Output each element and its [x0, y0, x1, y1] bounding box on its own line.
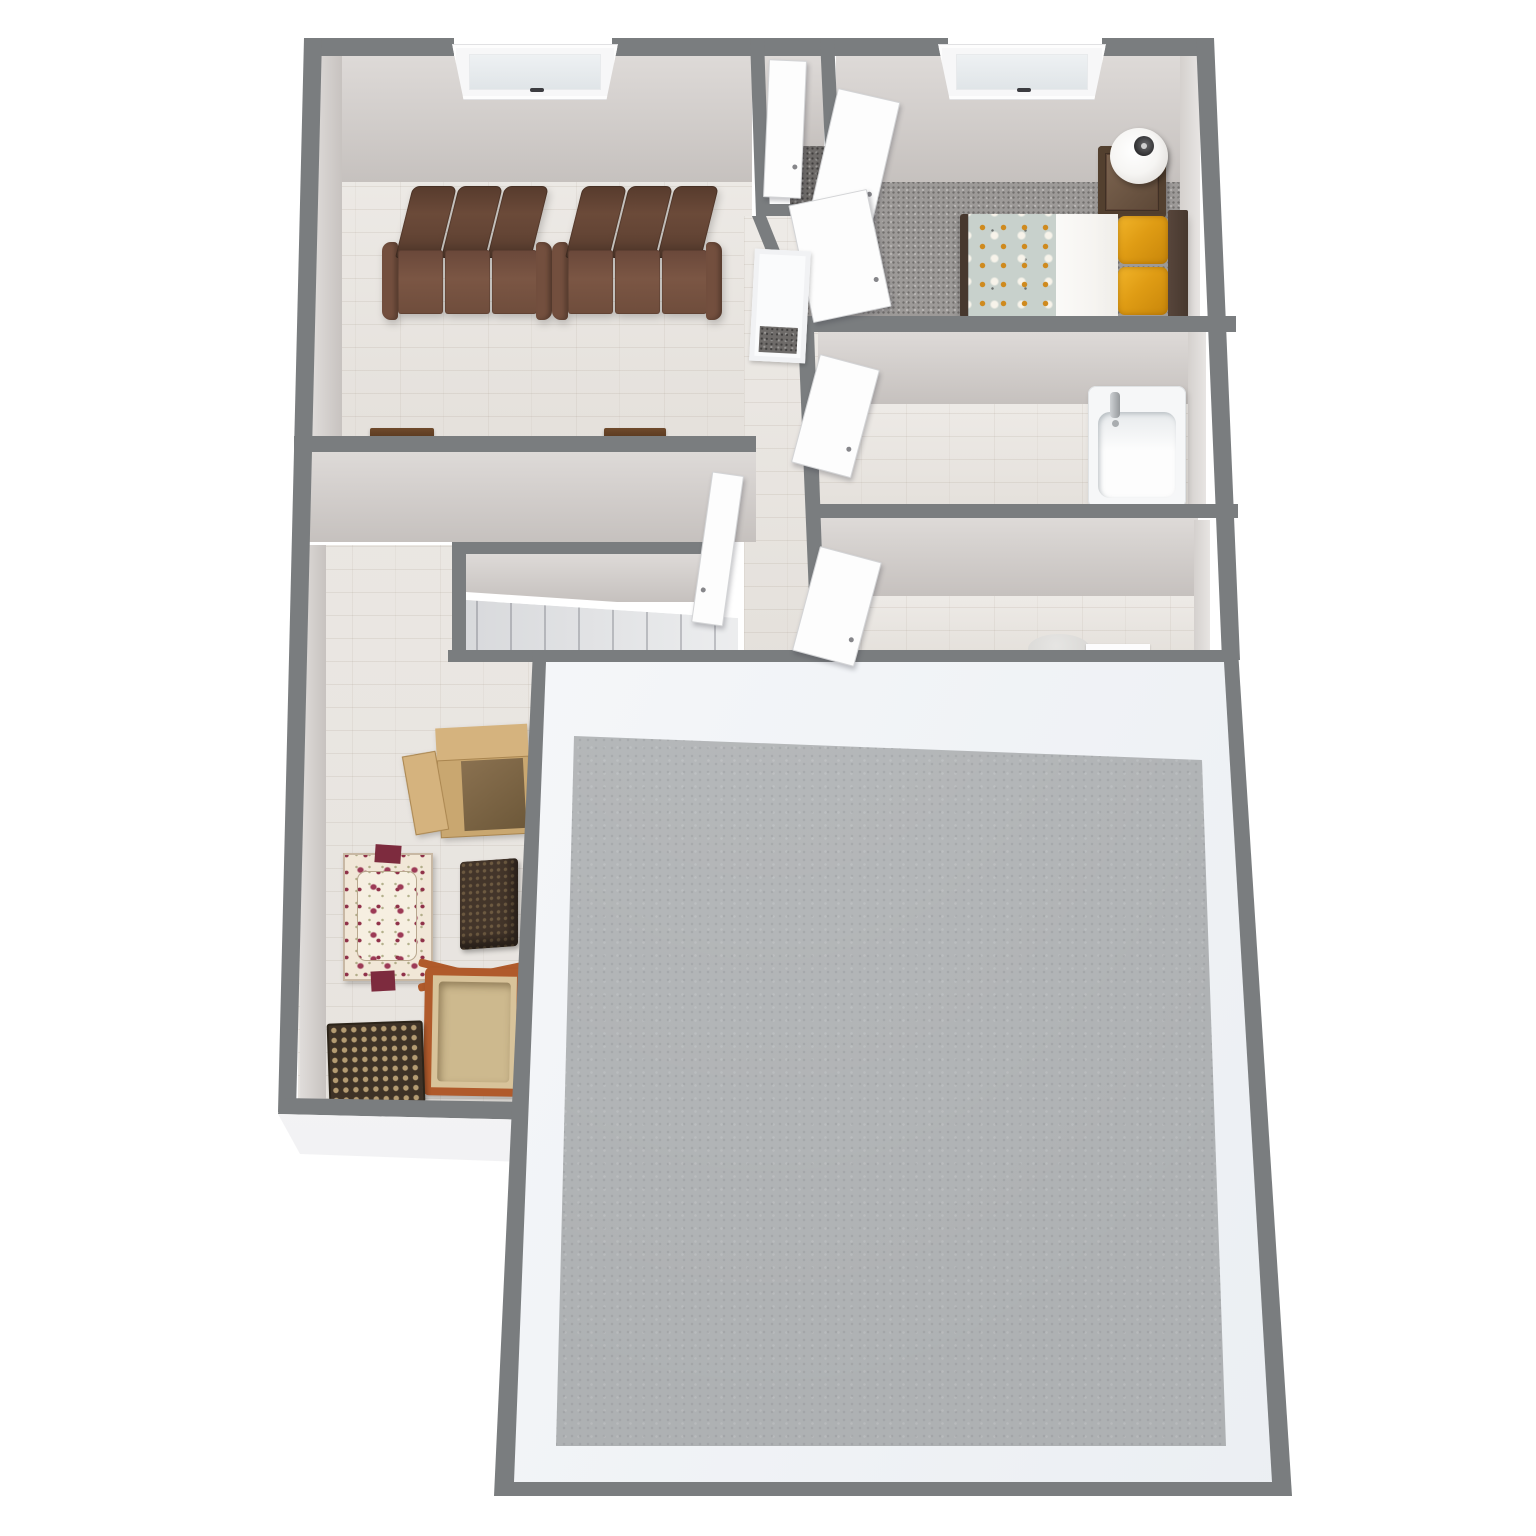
table-lamp — [1110, 128, 1168, 184]
linen-closet-niche — [749, 249, 811, 364]
window-pane — [469, 54, 600, 90]
bathroom-south-wall-cap — [806, 504, 1238, 518]
sofa-seat-cushion — [492, 250, 537, 314]
basket-body — [423, 967, 525, 1097]
living-room-south-wall-face — [300, 452, 756, 542]
bed-pillows — [1118, 216, 1168, 316]
sofa-arm-icon — [536, 242, 552, 320]
bathtub — [1088, 386, 1186, 508]
pillow-bottom — [1118, 267, 1168, 315]
armchair-top-trim — [374, 844, 401, 864]
armchair-seat-cushion — [357, 871, 417, 961]
bedroom-south-wall-cap — [802, 316, 1236, 332]
living-room-south-wall-cap — [294, 436, 756, 452]
sofa-back-cushions — [395, 186, 549, 258]
faucet-knob-icon — [1112, 420, 1119, 427]
bed-headboard — [1168, 210, 1188, 322]
lamp-shade-hole-icon — [1134, 136, 1154, 156]
living-room-window — [452, 44, 618, 100]
wc-east-wall-face — [1194, 520, 1210, 654]
sofa-back-cushions — [565, 186, 719, 258]
window-handle-icon — [530, 88, 544, 92]
canvas-basket — [423, 967, 525, 1097]
box-opening — [461, 758, 527, 831]
theater-sofa-left — [386, 184, 548, 330]
wicker-ottoman — [460, 858, 518, 950]
floor-plan-canvas — [0, 0, 1536, 1536]
closet-door — [763, 59, 807, 199]
woven-mat — [327, 1020, 426, 1105]
sofa-seat-cushions — [398, 250, 537, 314]
bathroom-east-wall-face — [1188, 332, 1206, 506]
linen-closet-carpet — [759, 326, 798, 354]
sofa-seat-cushion — [568, 250, 613, 314]
sofa-seat-cushion — [398, 250, 443, 314]
door-handle-icon — [873, 277, 879, 283]
sofa-seat-cushion — [445, 250, 490, 314]
stairwell-north-wall-cap — [452, 542, 714, 554]
bedroom-window — [938, 44, 1106, 100]
cardboard-box — [435, 724, 533, 839]
stairwell-west-wall-cap — [452, 542, 466, 662]
door-handle-icon — [848, 637, 854, 643]
armchair-bottom-trim — [370, 970, 395, 991]
faucet-icon — [1110, 392, 1120, 418]
bathtub-basin — [1098, 412, 1176, 498]
window-handle-icon — [1017, 88, 1031, 92]
sofa-seat-cushions — [568, 250, 707, 314]
top-wall-cap-middle — [612, 38, 948, 56]
bed-duvet-patterned — [968, 214, 1057, 318]
sofa-seat-cushion — [615, 250, 660, 314]
basket-interior — [437, 981, 511, 1082]
pillow-top — [1118, 216, 1168, 264]
theater-sofa-right — [556, 184, 718, 330]
box-top-flap — [435, 724, 529, 762]
door-handle-icon — [700, 587, 706, 593]
door-handle-icon — [846, 446, 852, 452]
lamp-finial-icon — [1141, 143, 1147, 149]
bed — [960, 214, 1188, 318]
bed-sheet — [1056, 214, 1118, 318]
sofa-seat-cushion — [662, 250, 707, 314]
sofa-arm-icon — [706, 242, 722, 320]
window-pane — [956, 54, 1089, 90]
top-wall-cap-left — [306, 38, 454, 56]
door-handle-icon — [792, 164, 797, 169]
